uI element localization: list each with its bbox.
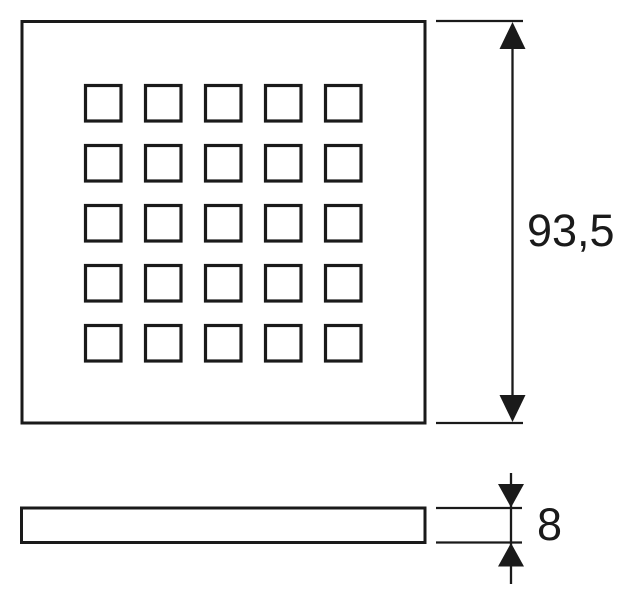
grate-hole bbox=[206, 206, 242, 242]
grate-hole bbox=[206, 266, 242, 302]
grate-hole bbox=[266, 86, 302, 122]
grate-hole bbox=[146, 86, 182, 122]
arrow-up-icon bbox=[498, 543, 524, 567]
grate-hole bbox=[146, 266, 182, 302]
grate-hole bbox=[326, 206, 362, 242]
grate-hole bbox=[146, 146, 182, 182]
side-view bbox=[22, 508, 426, 543]
height-dimension: 93,5 bbox=[436, 21, 615, 423]
grate-hole bbox=[146, 206, 182, 242]
technical-drawing: 93,5 8 bbox=[0, 0, 630, 602]
grate-hole bbox=[86, 146, 122, 182]
grate-hole bbox=[326, 326, 362, 362]
drawing-canvas: 93,5 8 bbox=[0, 0, 630, 602]
front-view bbox=[22, 22, 425, 424]
grate-hole bbox=[326, 146, 362, 182]
grate-outline bbox=[22, 22, 425, 424]
grate-hole bbox=[206, 86, 242, 122]
grate-hole bbox=[86, 206, 122, 242]
thickness-dimension-label: 8 bbox=[537, 499, 562, 550]
grate-hole bbox=[86, 266, 122, 302]
grate-hole bbox=[146, 326, 182, 362]
grate-profile bbox=[22, 508, 426, 543]
grate-hole bbox=[266, 206, 302, 242]
thickness-dimension: 8 bbox=[436, 473, 562, 584]
arrow-down-icon bbox=[498, 484, 524, 508]
grate-hole bbox=[86, 86, 122, 122]
hole-grid bbox=[86, 86, 362, 362]
grate-hole bbox=[206, 146, 242, 182]
height-dimension-label: 93,5 bbox=[527, 205, 615, 256]
grate-hole bbox=[206, 326, 242, 362]
grate-hole bbox=[266, 146, 302, 182]
arrow-up-icon bbox=[500, 22, 526, 49]
grate-hole bbox=[266, 326, 302, 362]
grate-hole bbox=[326, 266, 362, 302]
arrow-down-icon bbox=[500, 395, 526, 422]
grate-hole bbox=[86, 326, 122, 362]
grate-hole bbox=[326, 86, 362, 122]
grate-hole bbox=[266, 266, 302, 302]
